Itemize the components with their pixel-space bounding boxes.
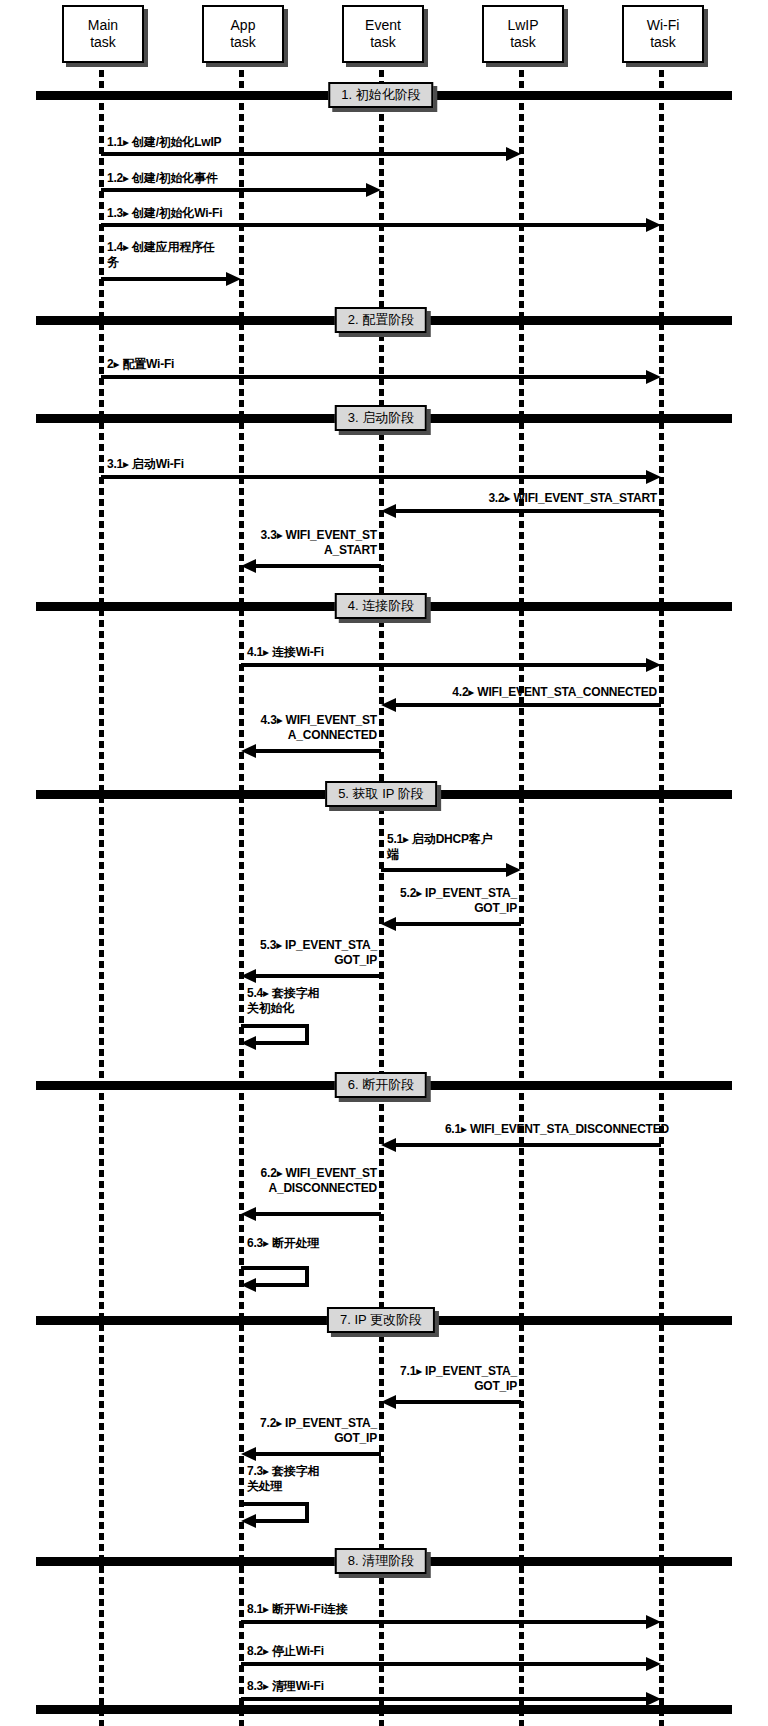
message-label-7.1: 7.1▸ IP_EVENT_STA_GOT_IP <box>400 1364 517 1394</box>
message-label-line: 3.1▸ 启动Wi-Fi <box>107 457 184 472</box>
task-label-line: task <box>370 34 396 51</box>
message-label-3.1: 3.1▸ 启动Wi-Fi <box>107 457 184 472</box>
message-label-line: 7.1▸ IP_EVENT_STA_ <box>400 1364 517 1379</box>
message-label-line: 4.3▸ WIFI_EVENT_ST <box>261 713 377 728</box>
message-label-3.2: 3.2▸ WIFI_EVENT_STA_START <box>488 491 657 506</box>
message-label-line: GOT_IP <box>260 1431 377 1446</box>
self-arrowhead-6.3 <box>241 1278 256 1292</box>
message-arrowhead-1.1 <box>506 147 521 161</box>
message-label-1.1: 1.1▸ 创建/初始化LwIP <box>107 135 221 150</box>
message-label-line: 6.2▸ WIFI_EVENT_ST <box>261 1166 377 1181</box>
self-arrow-top-5.4 <box>241 1024 309 1028</box>
message-arrow-4.2 <box>394 703 661 707</box>
message-label-3.3: 3.3▸ WIFI_EVENT_STA_START <box>261 528 377 558</box>
message-label-line: A_START <box>261 543 377 558</box>
message-arrow-5.2 <box>394 922 521 926</box>
message-arrowhead-6.1 <box>381 1138 396 1152</box>
task-box-app: Apptask <box>202 5 284 63</box>
message-label-line: GOT_IP <box>260 953 377 968</box>
message-label-1.3: 1.3▸ 创建/初始化Wi-Fi <box>107 206 222 221</box>
message-label-5.2: 5.2▸ IP_EVENT_STA_GOT_IP <box>400 886 517 916</box>
message-label-6.3: 6.3▸ 断开处理 <box>247 1236 319 1251</box>
task-label-line: task <box>230 34 256 51</box>
message-arrow-6.2 <box>254 1212 381 1216</box>
message-label-line: 7.3▸ 套接字相 <box>247 1464 319 1479</box>
task-box-wifi: Wi-Fitask <box>622 5 704 63</box>
message-arrow-8.3 <box>241 1697 648 1701</box>
phase-label-6: 6. 断开阶段 <box>335 1072 427 1098</box>
self-arrowhead-7.3 <box>241 1514 256 1528</box>
message-arrow-5.1 <box>381 868 508 872</box>
message-label-line: A_CONNECTED <box>261 728 377 743</box>
message-arrowhead-8.2 <box>646 1657 661 1671</box>
message-label-6.2: 6.2▸ WIFI_EVENT_STA_DISCONNECTED <box>261 1166 377 1196</box>
phase-label-2: 2. 配置阶段 <box>335 307 427 333</box>
message-label-line: 1.3▸ 创建/初始化Wi-Fi <box>107 206 222 221</box>
message-arrow-3.3 <box>254 564 381 568</box>
message-arrow-7.1 <box>394 1400 521 1404</box>
message-label-5.3: 5.3▸ IP_EVENT_STA_GOT_IP <box>260 938 377 968</box>
self-arrow-top-6.3 <box>241 1266 309 1270</box>
message-arrow-8.1 <box>241 1620 648 1624</box>
task-label-line: LwIP <box>507 17 538 34</box>
message-arrow-3.2 <box>394 509 661 513</box>
message-arrowhead-8.3 <box>646 1692 661 1706</box>
self-arrow-side-5.4 <box>305 1024 309 1045</box>
self-arrow-bottom-5.4 <box>254 1041 305 1045</box>
lifeline-lwip <box>519 59 524 1726</box>
task-label-line: task <box>510 34 536 51</box>
message-arrow-1.3 <box>101 223 648 227</box>
message-arrow-1.4 <box>101 277 228 281</box>
self-arrow-bottom-7.3 <box>254 1519 305 1523</box>
message-label-line: 务 <box>107 255 215 270</box>
task-label-line: task <box>650 34 676 51</box>
message-arrowhead-4.3 <box>241 744 256 758</box>
message-label-7.2: 7.2▸ IP_EVENT_STA_GOT_IP <box>260 1416 377 1446</box>
message-label-line: 关处理 <box>247 1479 319 1494</box>
message-label-2: 2▸ 配置Wi-Fi <box>107 357 174 372</box>
message-label-1.2: 1.2▸ 创建/初始化事件 <box>107 171 218 186</box>
message-arrowhead-5.1 <box>506 863 521 877</box>
message-arrow-3.1 <box>101 475 648 479</box>
message-label-line: 4.2▸ WIFI_EVENT_STA_CONNECTED <box>452 685 657 700</box>
message-arrowhead-1.3 <box>646 218 661 232</box>
message-arrowhead-1.2 <box>366 183 381 197</box>
self-arrow-side-6.3 <box>305 1266 309 1287</box>
task-label-line: Main <box>88 17 118 34</box>
message-label-8.1: 8.1▸ 断开Wi-Fi连接 <box>247 1602 347 1617</box>
message-arrow-4.1 <box>241 663 648 667</box>
message-label-line: 6.3▸ 断开处理 <box>247 1236 319 1251</box>
diagram-end-bar <box>36 1705 732 1714</box>
message-arrow-1.1 <box>101 152 508 156</box>
message-label-line: 5.4▸ 套接字相 <box>247 986 319 1001</box>
message-arrow-8.2 <box>241 1662 648 1666</box>
task-label-line: App <box>231 17 256 34</box>
message-arrowhead-3.2 <box>381 504 396 518</box>
message-label-line: 8.1▸ 断开Wi-Fi连接 <box>247 1602 347 1617</box>
message-label-line: 8.2▸ 停止Wi-Fi <box>247 1644 324 1659</box>
message-label-line: 关初始化 <box>247 1001 319 1016</box>
message-arrow-1.2 <box>101 188 368 192</box>
lifeline-app <box>239 59 244 1726</box>
message-arrowhead-7.2 <box>241 1447 256 1461</box>
message-label-line: 3.2▸ WIFI_EVENT_STA_START <box>488 491 657 506</box>
self-arrow-bottom-6.3 <box>254 1283 305 1287</box>
message-arrow-6.1 <box>394 1143 661 1147</box>
message-arrowhead-2 <box>646 370 661 384</box>
message-label-line: 1.1▸ 创建/初始化LwIP <box>107 135 221 150</box>
message-arrow-4.3 <box>254 749 381 753</box>
message-label-1.4: 1.4▸ 创建应用程序任务 <box>107 240 215 270</box>
task-box-event: Eventtask <box>342 5 424 63</box>
message-label-4.1: 4.1▸ 连接Wi-Fi <box>247 645 324 660</box>
message-label-line: 3.3▸ WIFI_EVENT_ST <box>261 528 377 543</box>
task-label-line: Wi-Fi <box>647 17 680 34</box>
message-arrowhead-3.3 <box>241 559 256 573</box>
message-label-5.4: 5.4▸ 套接字相关初始化 <box>247 986 319 1016</box>
message-label-line: 端 <box>387 847 492 862</box>
message-label-line: 5.2▸ IP_EVENT_STA_ <box>400 886 517 901</box>
message-label-line: 7.2▸ IP_EVENT_STA_ <box>260 1416 377 1431</box>
message-label-line: 5.1▸ 启动DHCP客户 <box>387 832 492 847</box>
phase-label-3: 3. 启动阶段 <box>335 405 427 431</box>
message-label-line: 6.1▸ WIFI_EVENT_STA_DISCONNECTED <box>445 1122 669 1137</box>
message-label-8.2: 8.2▸ 停止Wi-Fi <box>247 1644 324 1659</box>
phase-label-7: 7. IP 更改阶段 <box>327 1307 435 1333</box>
self-arrowhead-5.4 <box>241 1036 256 1050</box>
message-label-8.3: 8.3▸ 清理Wi-Fi <box>247 1679 324 1694</box>
message-label-7.3: 7.3▸ 套接字相关处理 <box>247 1464 319 1494</box>
self-arrow-top-7.3 <box>241 1502 309 1506</box>
task-label-line: task <box>90 34 116 51</box>
message-arrowhead-5.3 <box>241 969 256 983</box>
message-label-line: 2▸ 配置Wi-Fi <box>107 357 174 372</box>
message-label-line: GOT_IP <box>400 1379 517 1394</box>
task-box-lwip: LwIPtask <box>482 5 564 63</box>
message-arrowhead-3.1 <box>646 470 661 484</box>
message-label-line: GOT_IP <box>400 901 517 916</box>
message-arrowhead-6.2 <box>241 1207 256 1221</box>
message-label-line: 5.3▸ IP_EVENT_STA_ <box>260 938 377 953</box>
phase-label-5: 5. 获取 IP 阶段 <box>325 781 437 807</box>
message-arrowhead-4.2 <box>381 698 396 712</box>
message-label-line: 1.4▸ 创建应用程序任 <box>107 240 215 255</box>
lifeline-main <box>99 59 104 1726</box>
sequence-diagram: 1. 初始化阶段2. 配置阶段3. 启动阶段4. 连接阶段5. 获取 IP 阶段… <box>0 0 768 1726</box>
message-label-5.1: 5.1▸ 启动DHCP客户端 <box>387 832 492 862</box>
message-arrow-5.3 <box>254 974 381 978</box>
message-arrowhead-1.4 <box>226 272 241 286</box>
message-label-4.3: 4.3▸ WIFI_EVENT_STA_CONNECTED <box>261 713 377 743</box>
message-label-4.2: 4.2▸ WIFI_EVENT_STA_CONNECTED <box>452 685 657 700</box>
phase-label-8: 8. 清理阶段 <box>335 1548 427 1574</box>
phase-label-4: 4. 连接阶段 <box>335 593 427 619</box>
message-arrowhead-5.2 <box>381 917 396 931</box>
self-arrow-side-7.3 <box>305 1502 309 1523</box>
lifeline-wifi <box>659 59 664 1726</box>
task-box-main: Maintask <box>62 5 144 63</box>
phase-label-1: 1. 初始化阶段 <box>328 82 433 108</box>
message-arrow-2 <box>101 375 648 379</box>
message-arrowhead-7.1 <box>381 1395 396 1409</box>
message-arrow-7.2 <box>254 1452 381 1456</box>
message-label-line: 8.3▸ 清理Wi-Fi <box>247 1679 324 1694</box>
message-label-6.1: 6.1▸ WIFI_EVENT_STA_DISCONNECTED <box>445 1122 669 1137</box>
message-arrowhead-8.1 <box>646 1615 661 1629</box>
task-label-line: Event <box>365 17 401 34</box>
message-label-line: 4.1▸ 连接Wi-Fi <box>247 645 324 660</box>
message-label-line: 1.2▸ 创建/初始化事件 <box>107 171 218 186</box>
message-arrowhead-4.1 <box>646 658 661 672</box>
message-label-line: A_DISCONNECTED <box>261 1181 377 1196</box>
